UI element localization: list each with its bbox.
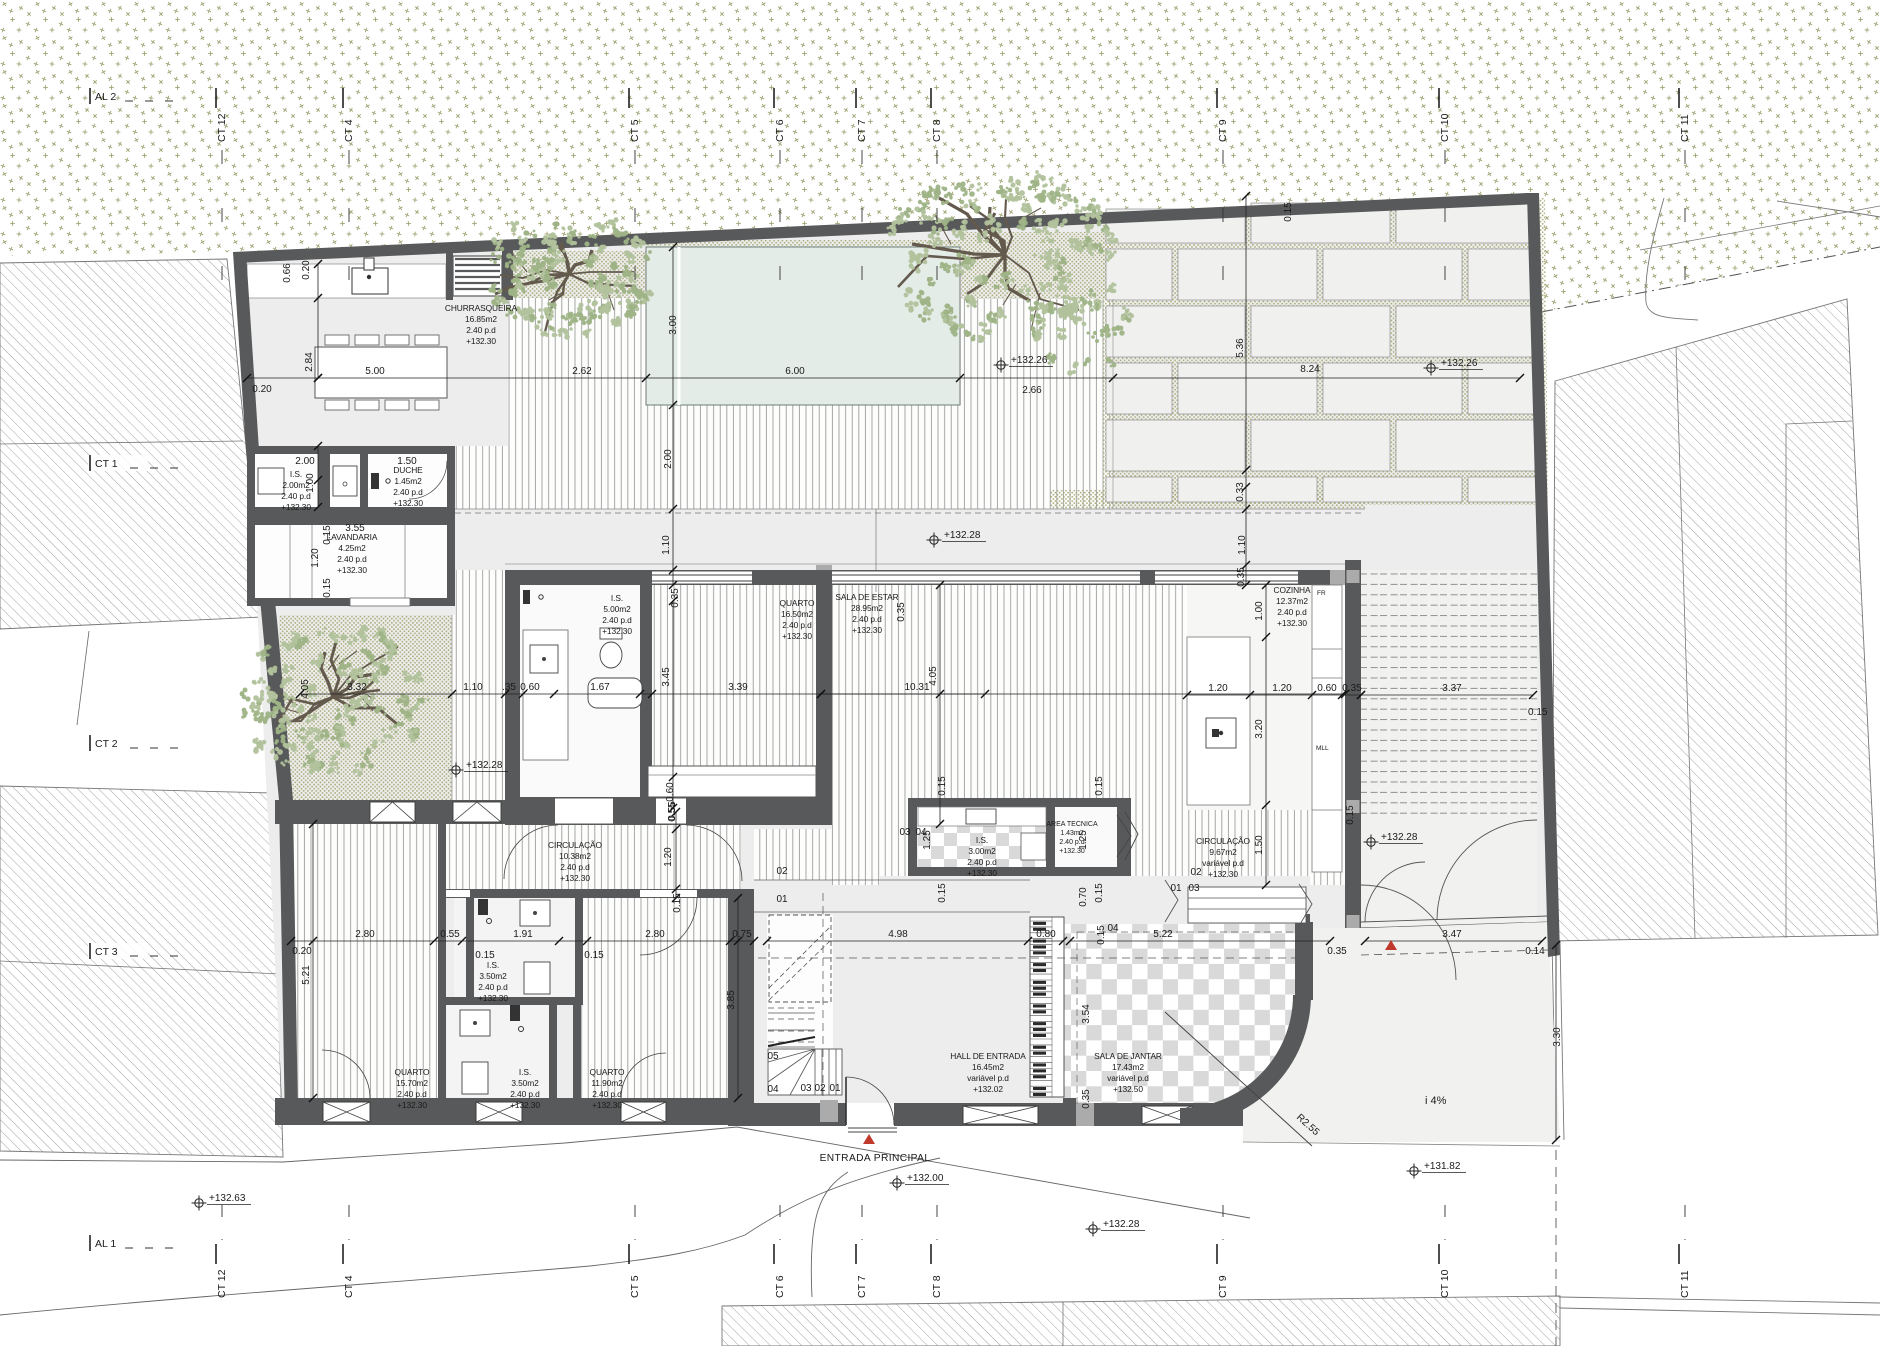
svg-text:0.60: 0.60	[665, 782, 676, 802]
svg-text:CT 8: CT 8	[931, 1275, 943, 1298]
svg-text:CT 11: CT 11	[1679, 114, 1691, 142]
svg-text:5.36: 5.36	[1235, 338, 1246, 358]
svg-text:CT 2: CT 2	[95, 738, 118, 750]
svg-text:1.20: 1.20	[1272, 683, 1292, 694]
svg-text:DUCHE1.45m22.40 p.d+132.30: DUCHE1.45m22.40 p.d+132.30	[393, 465, 423, 508]
svg-text:1.20: 1.20	[663, 847, 674, 867]
svg-text:QUARTO16.50m22.40 p.d+132.30: QUARTO16.50m22.40 p.d+132.30	[780, 598, 816, 641]
svg-text:3.30: 3.30	[1552, 1027, 1563, 1047]
svg-text:2.00: 2.00	[295, 456, 315, 467]
svg-text:CT 9: CT 9	[1217, 1275, 1229, 1298]
svg-text:CT 11: CT 11	[1679, 1270, 1691, 1298]
svg-text:1.20: 1.20	[1208, 683, 1228, 694]
svg-text:+132.28: +132.28	[466, 760, 503, 771]
svg-text:0.15: 0.15	[672, 893, 683, 913]
svg-text:CT 4: CT 4	[343, 119, 355, 142]
svg-text:1.50: 1.50	[1254, 835, 1265, 855]
svg-text:3.85: 3.85	[726, 990, 737, 1010]
svg-text:MLL: MLL	[1316, 745, 1329, 752]
svg-text:+132.26: +132.26	[1011, 355, 1048, 366]
svg-text:03: 03	[899, 827, 911, 838]
svg-text:0.15: 0.15	[1345, 805, 1356, 825]
svg-text:+132.26: +132.26	[1441, 358, 1478, 369]
svg-text:0.35: 0.35	[1342, 683, 1362, 694]
svg-text:0.35: 0.35	[1236, 567, 1247, 587]
svg-text:3.37: 3.37	[1442, 683, 1462, 694]
svg-text:0.60: 0.60	[1317, 683, 1337, 694]
svg-text:0.35: 0.35	[896, 602, 907, 622]
svg-text:2.84: 2.84	[304, 352, 315, 372]
svg-text:3.47: 3.47	[1442, 929, 1462, 940]
svg-text:AL 2: AL 2	[95, 91, 116, 103]
svg-text:1.10: 1.10	[463, 682, 483, 693]
svg-text:4.98: 4.98	[888, 929, 908, 940]
svg-text:ENTRADA PRINCIPAL: ENTRADA PRINCIPAL	[820, 1153, 931, 1164]
svg-text:4.05: 4.05	[928, 666, 939, 686]
svg-text:1.67: 1.67	[590, 682, 610, 693]
svg-text:0.14: 0.14	[1525, 946, 1545, 957]
svg-text:03: 03	[1188, 883, 1200, 894]
svg-text:0.20: 0.20	[292, 946, 312, 957]
svg-text:02: 02	[776, 866, 788, 877]
svg-text:3.54: 3.54	[1081, 1004, 1092, 1024]
svg-text:2.00: 2.00	[663, 449, 674, 469]
svg-text:CT 7: CT 7	[856, 119, 868, 142]
svg-text:+132.28: +132.28	[1103, 1219, 1140, 1230]
svg-text:1.00: 1.00	[1254, 601, 1265, 621]
svg-text:+131.82: +131.82	[1424, 1161, 1461, 1172]
svg-text:CT 10: CT 10	[1439, 113, 1451, 142]
svg-text:0.66: 0.66	[282, 263, 293, 283]
svg-text:0.15: 0.15	[937, 776, 948, 796]
svg-text:CT 6: CT 6	[774, 1275, 786, 1298]
svg-text:CT 12: CT 12	[216, 113, 228, 142]
svg-text:1.20: 1.20	[310, 548, 321, 568]
svg-text:04: 04	[1107, 923, 1119, 934]
svg-text:CT 6: CT 6	[774, 119, 786, 142]
svg-text:4.05: 4.05	[300, 679, 311, 699]
svg-text:+132.28: +132.28	[1381, 832, 1418, 843]
svg-text:0.55: 0.55	[667, 801, 678, 821]
svg-text:1.10: 1.10	[1237, 535, 1248, 555]
svg-text:2.80: 2.80	[645, 929, 665, 940]
svg-text:CT 8: CT 8	[931, 119, 943, 142]
svg-text:+132.28: +132.28	[944, 530, 981, 541]
svg-text:0.15: 0.15	[322, 578, 333, 598]
svg-text:01: 01	[776, 894, 788, 905]
svg-text:0.20: 0.20	[252, 384, 272, 395]
svg-text:AL 1: AL 1	[95, 1238, 116, 1250]
svg-text:6.00: 6.00	[785, 366, 805, 377]
svg-text:CT 12: CT 12	[216, 1269, 228, 1298]
svg-text:3.45: 3.45	[661, 667, 672, 687]
svg-text:CT 1: CT 1	[95, 458, 118, 470]
svg-text:01: 01	[829, 1083, 841, 1094]
svg-text:0.20: 0.20	[301, 260, 312, 280]
svg-text:.35: .35	[502, 682, 516, 693]
svg-text:0.15: 0.15	[1096, 925, 1107, 945]
svg-text:CT 3: CT 3	[95, 946, 118, 958]
svg-text:5.21: 5.21	[301, 965, 312, 985]
svg-text:0.35: 0.35	[1081, 1089, 1092, 1109]
svg-text:03: 03	[800, 1083, 812, 1094]
svg-text:0.33: 0.33	[1235, 482, 1246, 502]
svg-text:3.00: 3.00	[668, 315, 679, 335]
svg-text:5.00: 5.00	[365, 366, 385, 377]
svg-text:1.10: 1.10	[661, 535, 672, 555]
svg-text:0.15: 0.15	[1528, 707, 1548, 718]
svg-text:04: 04	[915, 827, 927, 838]
svg-text:0.15: 0.15	[1283, 202, 1294, 222]
svg-text:0.70: 0.70	[1078, 887, 1089, 907]
svg-text:02: 02	[1190, 867, 1202, 878]
svg-text:5.22: 5.22	[1153, 929, 1173, 940]
svg-text:+132.00: +132.00	[907, 1173, 944, 1184]
svg-text:0.15: 0.15	[937, 883, 948, 903]
svg-text:CT 5: CT 5	[629, 1275, 641, 1298]
svg-text:02: 02	[814, 1083, 826, 1094]
svg-text:3.39: 3.39	[728, 682, 748, 693]
svg-text:FR: FR	[1317, 590, 1326, 597]
svg-text:CT 5: CT 5	[629, 119, 641, 142]
svg-text:CT 7: CT 7	[856, 1275, 868, 1298]
svg-text:2.66: 2.66	[1022, 385, 1042, 396]
svg-text:0.55: 0.55	[440, 929, 460, 940]
svg-text:2.80: 2.80	[355, 929, 375, 940]
svg-text:04: 04	[767, 1084, 779, 1095]
svg-text:1.91: 1.91	[513, 929, 533, 940]
svg-text:10.31: 10.31	[904, 682, 929, 693]
svg-text:0.35: 0.35	[1327, 946, 1347, 957]
svg-text:i 4%: i 4%	[1425, 1095, 1447, 1107]
svg-text:2.62: 2.62	[572, 366, 592, 377]
svg-text:0.80: 0.80	[1036, 929, 1056, 940]
svg-text:QUARTO15.70m22.40 p.d+132.30: QUARTO15.70m22.40 p.d+132.30	[395, 1067, 431, 1110]
svg-text:0.75: 0.75	[732, 929, 752, 940]
svg-text:05: 05	[767, 1051, 779, 1062]
svg-text:0.15: 0.15	[1094, 776, 1105, 796]
svg-text:8.24: 8.24	[1300, 364, 1320, 375]
svg-text:0.15: 0.15	[1094, 883, 1105, 903]
svg-text:+132.63: +132.63	[209, 1193, 246, 1204]
svg-text:CT 10: CT 10	[1439, 1269, 1451, 1298]
svg-text:0.60: 0.60	[520, 682, 540, 693]
svg-text:3.20: 3.20	[1254, 719, 1265, 739]
svg-text:01: 01	[1170, 883, 1182, 894]
svg-text:CT 4: CT 4	[343, 1275, 355, 1298]
svg-text:CT 9: CT 9	[1217, 119, 1229, 142]
svg-text:0.15: 0.15	[584, 950, 604, 961]
svg-text:COZINHA12.37m22.40 p.d+132.30: COZINHA12.37m22.40 p.d+132.30	[1274, 585, 1312, 628]
svg-text:QUARTO11.90m22.40 p.d+132.30: QUARTO11.90m22.40 p.d+132.30	[590, 1067, 626, 1110]
svg-text:3.32: 3.32	[347, 682, 367, 693]
